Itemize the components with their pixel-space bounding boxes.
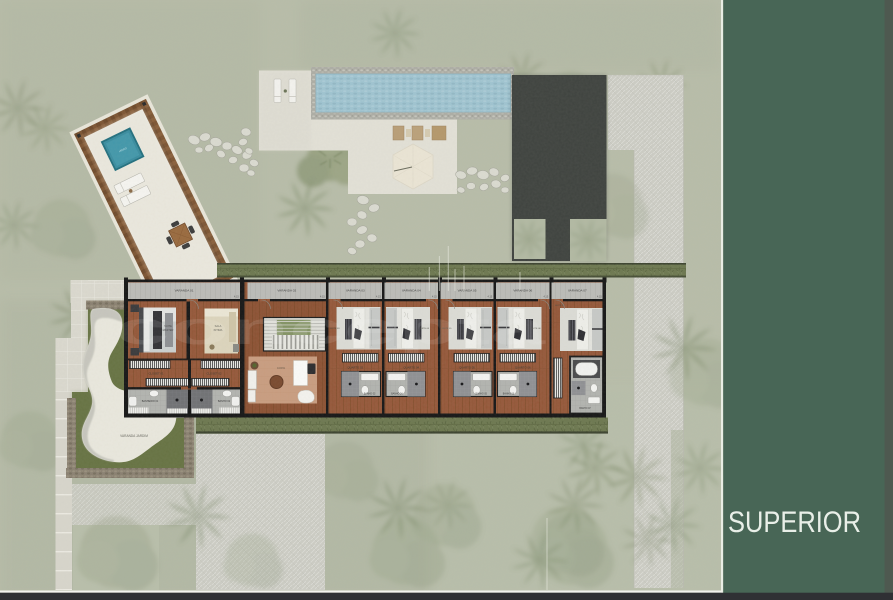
svg-text:SUPERIOR: SUPERIOR (728, 506, 861, 539)
